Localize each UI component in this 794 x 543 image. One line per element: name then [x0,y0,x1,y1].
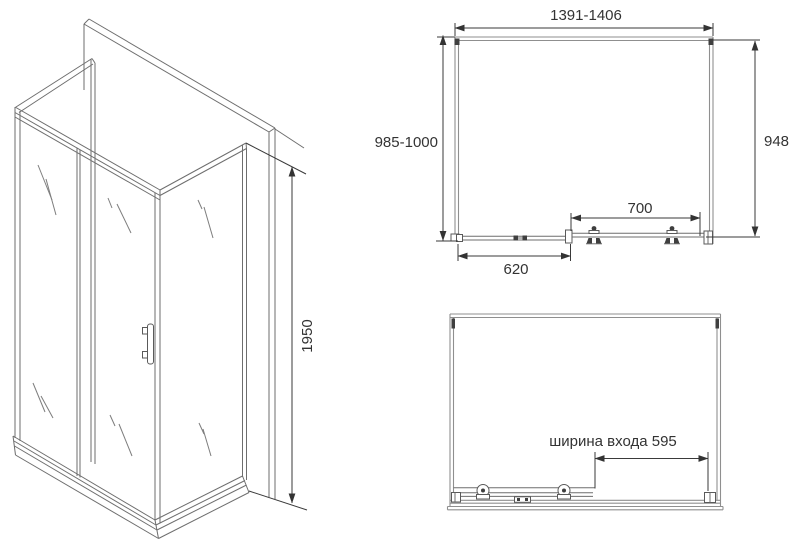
plan-width-dimension-label: 1391-1406 [550,7,622,24]
door-roller [558,485,571,500]
door-roller [477,485,490,500]
wall-profile-mark-right [709,39,714,46]
plan-track-dimension-label: 700 [627,200,652,217]
glass-reflection-marks [33,165,213,456]
sliding-door-unit [15,107,160,524]
front-track [448,500,724,510]
front-view: ширина входа 595 [448,314,724,510]
wall-profile-mark-left [452,319,456,329]
front-outline [450,314,721,507]
plan-track [572,226,713,244]
plan-view: 1391-1406 985-1000 948 700 6 [375,7,789,278]
plan-width-dimension: 1391-1406 [455,7,713,36]
door-guide-middle [515,497,531,503]
entrance-width-dimension: ширина входа 595 [549,433,708,491]
roller-bracket [586,226,602,244]
height-dimension: 1950 [246,143,316,510]
roller-bracket [664,226,680,244]
plan-door-dimension-label: 620 [503,261,528,278]
technical-drawing: 1950 [0,0,794,543]
plan-depth-dimension: 985-1000 [375,36,458,242]
plan-depth-dimension-label: 985-1000 [375,134,438,151]
shower-tray [13,436,249,539]
plan-door-bar [457,230,573,243]
door-handle [143,324,154,364]
entrance-width-dimension-label: ширина входа 595 [549,433,677,450]
door-stop-right [705,493,716,503]
back-panel [84,19,304,499]
plan-door-dimension: 620 [458,244,571,278]
door-guide-left [452,493,461,503]
plan-side-dimension: 948 [706,40,789,237]
isometric-view: 1950 [13,19,316,539]
height-dimension-label: 1950 [299,319,316,352]
plan-side-dimension-label: 948 [764,133,789,150]
plan-outline [451,37,714,244]
wall-profile-mark-right [716,319,720,329]
wall-profile-mark-left [455,39,460,46]
drawing-canvas: 1950 [0,0,794,543]
